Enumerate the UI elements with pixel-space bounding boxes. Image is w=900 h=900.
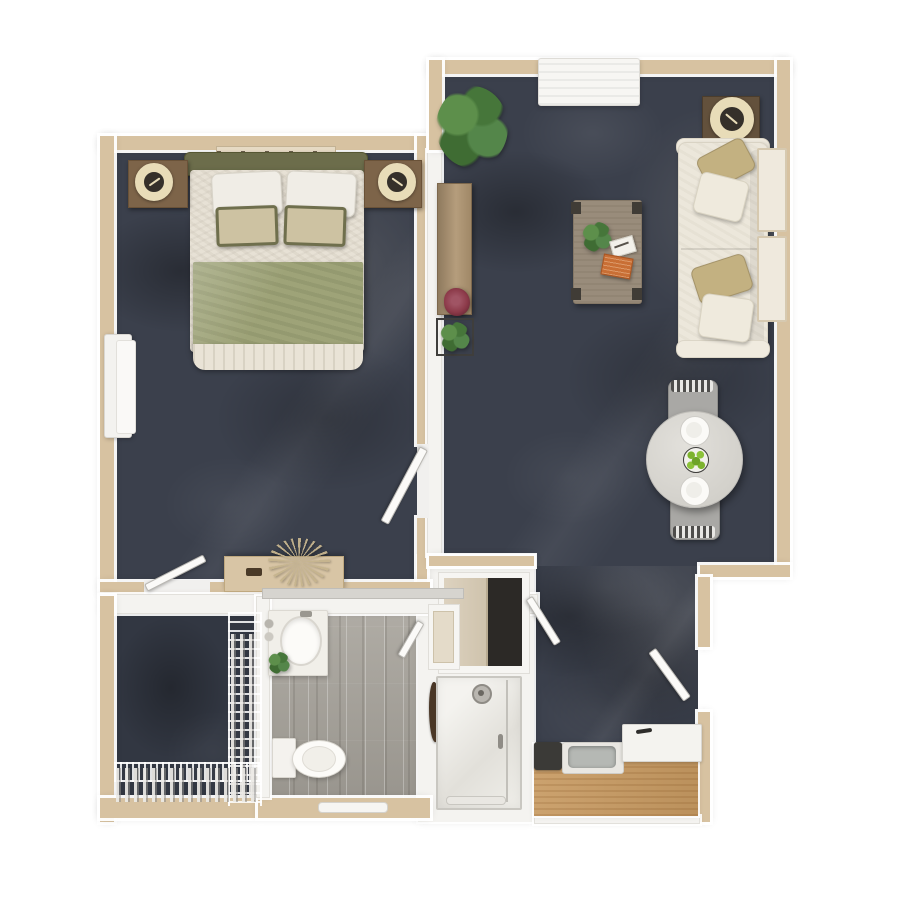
radiator-cover [116,340,136,434]
lamp-finial [148,178,159,187]
closet-wall-left [100,596,114,822]
dining-chair-top-rail [671,380,713,392]
berry-plant [444,288,470,316]
fruit-bowl [683,447,709,473]
nightstand-lamp-left [135,163,173,201]
wall-window-2 [757,236,787,322]
lamp-finial [391,178,402,187]
plate-top-inner [686,422,702,438]
mini-fridge [622,724,702,762]
soap-items [264,618,274,644]
planter-plant [440,322,470,352]
lamp-finial [725,113,738,124]
hanging-clothes-bottom [116,768,258,802]
shower-towel-bar [446,796,506,805]
toilet-seat [302,746,336,772]
coffee-table-corner [632,288,642,300]
living-wall-bottom-left [429,556,534,566]
bed-ruffle [193,344,363,370]
cooktop [534,742,562,770]
coffee-table-corner [632,202,642,214]
step-wall-horizontal [700,565,790,577]
floor-plan [0,0,900,900]
vanity-faucet [300,611,312,617]
sofa-armrest-bottom [676,340,770,358]
entry-closet-interior [488,578,522,666]
sofa-pillow-cream-2 [697,293,755,344]
coffee-table-corner [571,288,581,300]
hall-floor [534,566,698,746]
coffee-table-plant [582,222,612,252]
wall-window-1 [757,148,787,232]
shower-handle [498,734,503,749]
sofa-seat-divide [681,248,763,250]
sage-blanket [193,262,363,348]
plate-bottom-inner [686,482,702,498]
nightstand-lamp-right [378,163,416,201]
large-potted-plant [436,86,508,168]
console-decor-item [246,568,262,576]
shower-glass-panel [506,680,508,802]
window-ac-unit [538,58,640,106]
accent-pillow-right [283,205,346,247]
hall-wall-right-upper [698,577,710,647]
console-ledge [262,588,464,599]
pampas-plant [268,538,330,586]
bathroom-towel-bar [318,802,388,813]
bathroom-small-plant [268,652,290,674]
corner-table-lamp [710,97,754,141]
kitchen-bottom-trim [534,816,700,824]
dining-chair-bottom-rail [673,526,715,538]
shower-head-dot [478,690,484,696]
sink-basin [568,746,616,768]
coffee-table-corner [571,202,581,214]
accent-pillow-left [215,205,278,247]
niche-inner [433,611,454,663]
